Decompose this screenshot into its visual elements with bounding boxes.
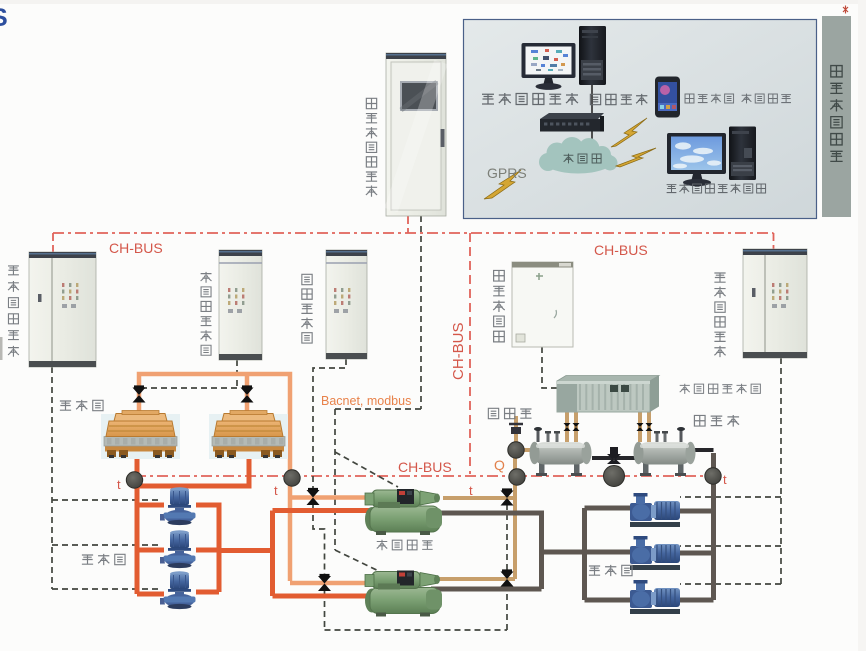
svg-text:Q: Q bbox=[494, 457, 505, 473]
svg-text:Bacnet, modbus: Bacnet, modbus bbox=[321, 394, 411, 408]
svg-text:t: t bbox=[274, 483, 278, 498]
svg-text:t: t bbox=[117, 477, 121, 492]
svg-text:t: t bbox=[723, 472, 727, 487]
svg-text:S: S bbox=[0, 4, 8, 32]
svg-text:CH-BUS: CH-BUS bbox=[594, 242, 648, 258]
svg-text:CH-BUS: CH-BUS bbox=[109, 240, 163, 256]
svg-text:t: t bbox=[469, 483, 473, 498]
svg-text:CH-BUS: CH-BUS bbox=[450, 322, 467, 380]
svg-text:CH-BUS: CH-BUS bbox=[398, 459, 452, 475]
svg-text:GPRS: GPRS bbox=[487, 165, 527, 181]
